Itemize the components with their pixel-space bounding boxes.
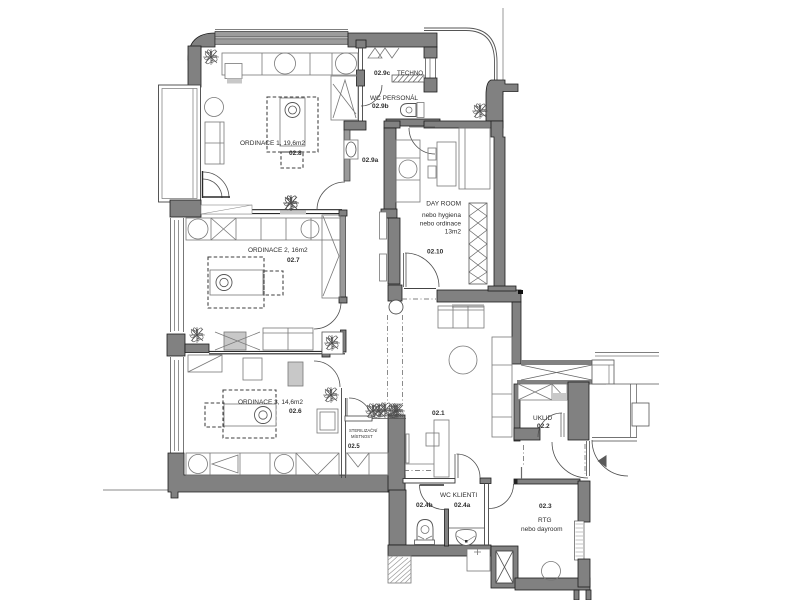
svg-text:02.10: 02.10 (427, 249, 444, 256)
svg-text:ORDINACE 3, 14,6m2: ORDINACE 3, 14,6m2 (238, 399, 303, 406)
svg-text:02.4b: 02.4b (416, 502, 433, 509)
svg-text:02.9b: 02.9b (372, 103, 389, 110)
svg-text:nebo hygiena: nebo hygiena (422, 212, 461, 219)
svg-text:nebo ordinace: nebo ordinace (420, 221, 462, 228)
svg-text:02.7: 02.7 (287, 257, 300, 264)
svg-text:MÍSTNOST: MÍSTNOST (351, 434, 373, 439)
svg-text:DAY ROOM: DAY ROOM (426, 201, 461, 208)
svg-text:02.3: 02.3 (539, 503, 552, 510)
svg-text:02.5: 02.5 (348, 444, 360, 450)
svg-text:02.4a: 02.4a (454, 502, 471, 509)
svg-text:TECHNO: TECHNO (397, 70, 423, 77)
svg-text:02.2: 02.2 (537, 423, 550, 430)
svg-text:ORDINACE 2, 16m2: ORDINACE 2, 16m2 (248, 247, 308, 254)
svg-text:02.9a: 02.9a (362, 157, 379, 164)
svg-text:13m2: 13m2 (445, 229, 462, 236)
svg-text:WC PERSONÁL: WC PERSONÁL (370, 93, 418, 102)
svg-text:UKLID: UKLID (533, 415, 552, 422)
svg-text:RTG: RTG (538, 517, 552, 524)
svg-text:STERILIZAČNÍ: STERILIZAČNÍ (349, 428, 378, 433)
svg-text:ORDINACE 1, 19,6m2: ORDINACE 1, 19,6m2 (240, 140, 305, 147)
svg-text:WC KLIENTI: WC KLIENTI (440, 492, 477, 499)
svg-text:02.9c: 02.9c (374, 70, 391, 77)
svg-text:02.6: 02.6 (289, 408, 302, 415)
svg-text:02.1: 02.1 (432, 410, 445, 417)
svg-text:nebo dayroom: nebo dayroom (521, 526, 563, 533)
svg-text:02.8: 02.8 (289, 150, 302, 157)
